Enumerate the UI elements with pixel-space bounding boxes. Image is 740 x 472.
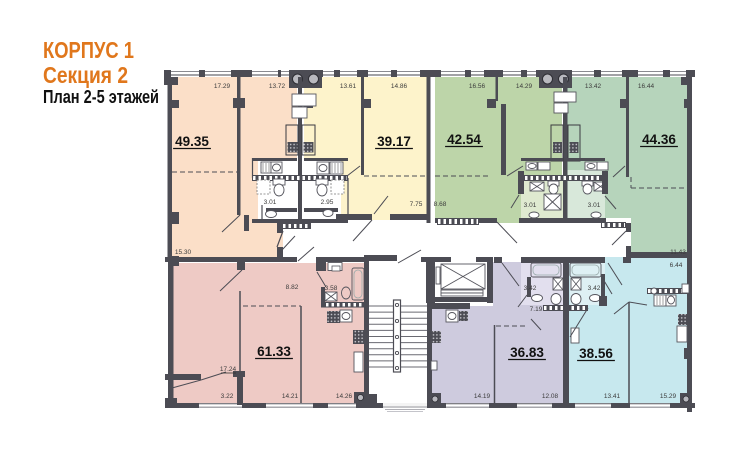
svg-text:61.33: 61.33 bbox=[257, 344, 291, 359]
svg-text:16.44: 16.44 bbox=[638, 83, 655, 90]
svg-text:14.86: 14.86 bbox=[391, 83, 408, 90]
svg-text:36.83: 36.83 bbox=[510, 345, 544, 360]
svg-text:8.82: 8.82 bbox=[286, 284, 299, 291]
svg-text:15.29: 15.29 bbox=[660, 393, 677, 400]
svg-text:38.56: 38.56 bbox=[579, 346, 613, 361]
svg-text:3.42: 3.42 bbox=[524, 285, 537, 292]
svg-text:42.54: 42.54 bbox=[447, 132, 481, 147]
svg-text:13.41: 13.41 bbox=[604, 393, 621, 400]
svg-text:8.68: 8.68 bbox=[434, 201, 447, 208]
svg-text:13.61: 13.61 bbox=[340, 83, 357, 90]
svg-text:15.30: 15.30 bbox=[175, 249, 192, 256]
svg-text:3.58: 3.58 bbox=[325, 285, 338, 292]
svg-text:14.29: 14.29 bbox=[516, 83, 533, 90]
svg-text:39.17: 39.17 bbox=[377, 134, 411, 149]
svg-text:13.42: 13.42 bbox=[585, 83, 602, 90]
svg-text:14.21: 14.21 bbox=[282, 393, 299, 400]
svg-text:2.95: 2.95 bbox=[321, 199, 334, 206]
svg-text:Секция 2: Секция 2 bbox=[43, 62, 128, 88]
svg-text:14.26: 14.26 bbox=[336, 393, 353, 400]
svg-text:3.01: 3.01 bbox=[264, 199, 277, 206]
svg-text:17.29: 17.29 bbox=[214, 83, 231, 90]
svg-text:План 2-5 этажей: План 2-5 этажей bbox=[43, 87, 159, 107]
svg-text:3.22: 3.22 bbox=[221, 393, 234, 400]
svg-text:3.01: 3.01 bbox=[524, 202, 537, 209]
svg-text:44.36: 44.36 bbox=[642, 132, 676, 147]
svg-text:6.44: 6.44 bbox=[670, 262, 683, 269]
svg-text:12.08: 12.08 bbox=[542, 393, 559, 400]
svg-text:7.19: 7.19 bbox=[530, 306, 543, 313]
svg-text:16.56: 16.56 bbox=[469, 83, 486, 90]
svg-text:14.19: 14.19 bbox=[474, 393, 491, 400]
svg-text:3.42: 3.42 bbox=[588, 285, 601, 292]
svg-text:7.75: 7.75 bbox=[410, 201, 423, 208]
svg-text:49.35: 49.35 bbox=[175, 134, 209, 149]
svg-text:11.43: 11.43 bbox=[670, 249, 686, 256]
svg-text:13.72: 13.72 bbox=[269, 83, 286, 90]
svg-text:КОРПУС 1: КОРПУС 1 bbox=[43, 37, 134, 63]
svg-text:17.24: 17.24 bbox=[220, 366, 237, 373]
svg-text:3.01: 3.01 bbox=[588, 202, 601, 209]
